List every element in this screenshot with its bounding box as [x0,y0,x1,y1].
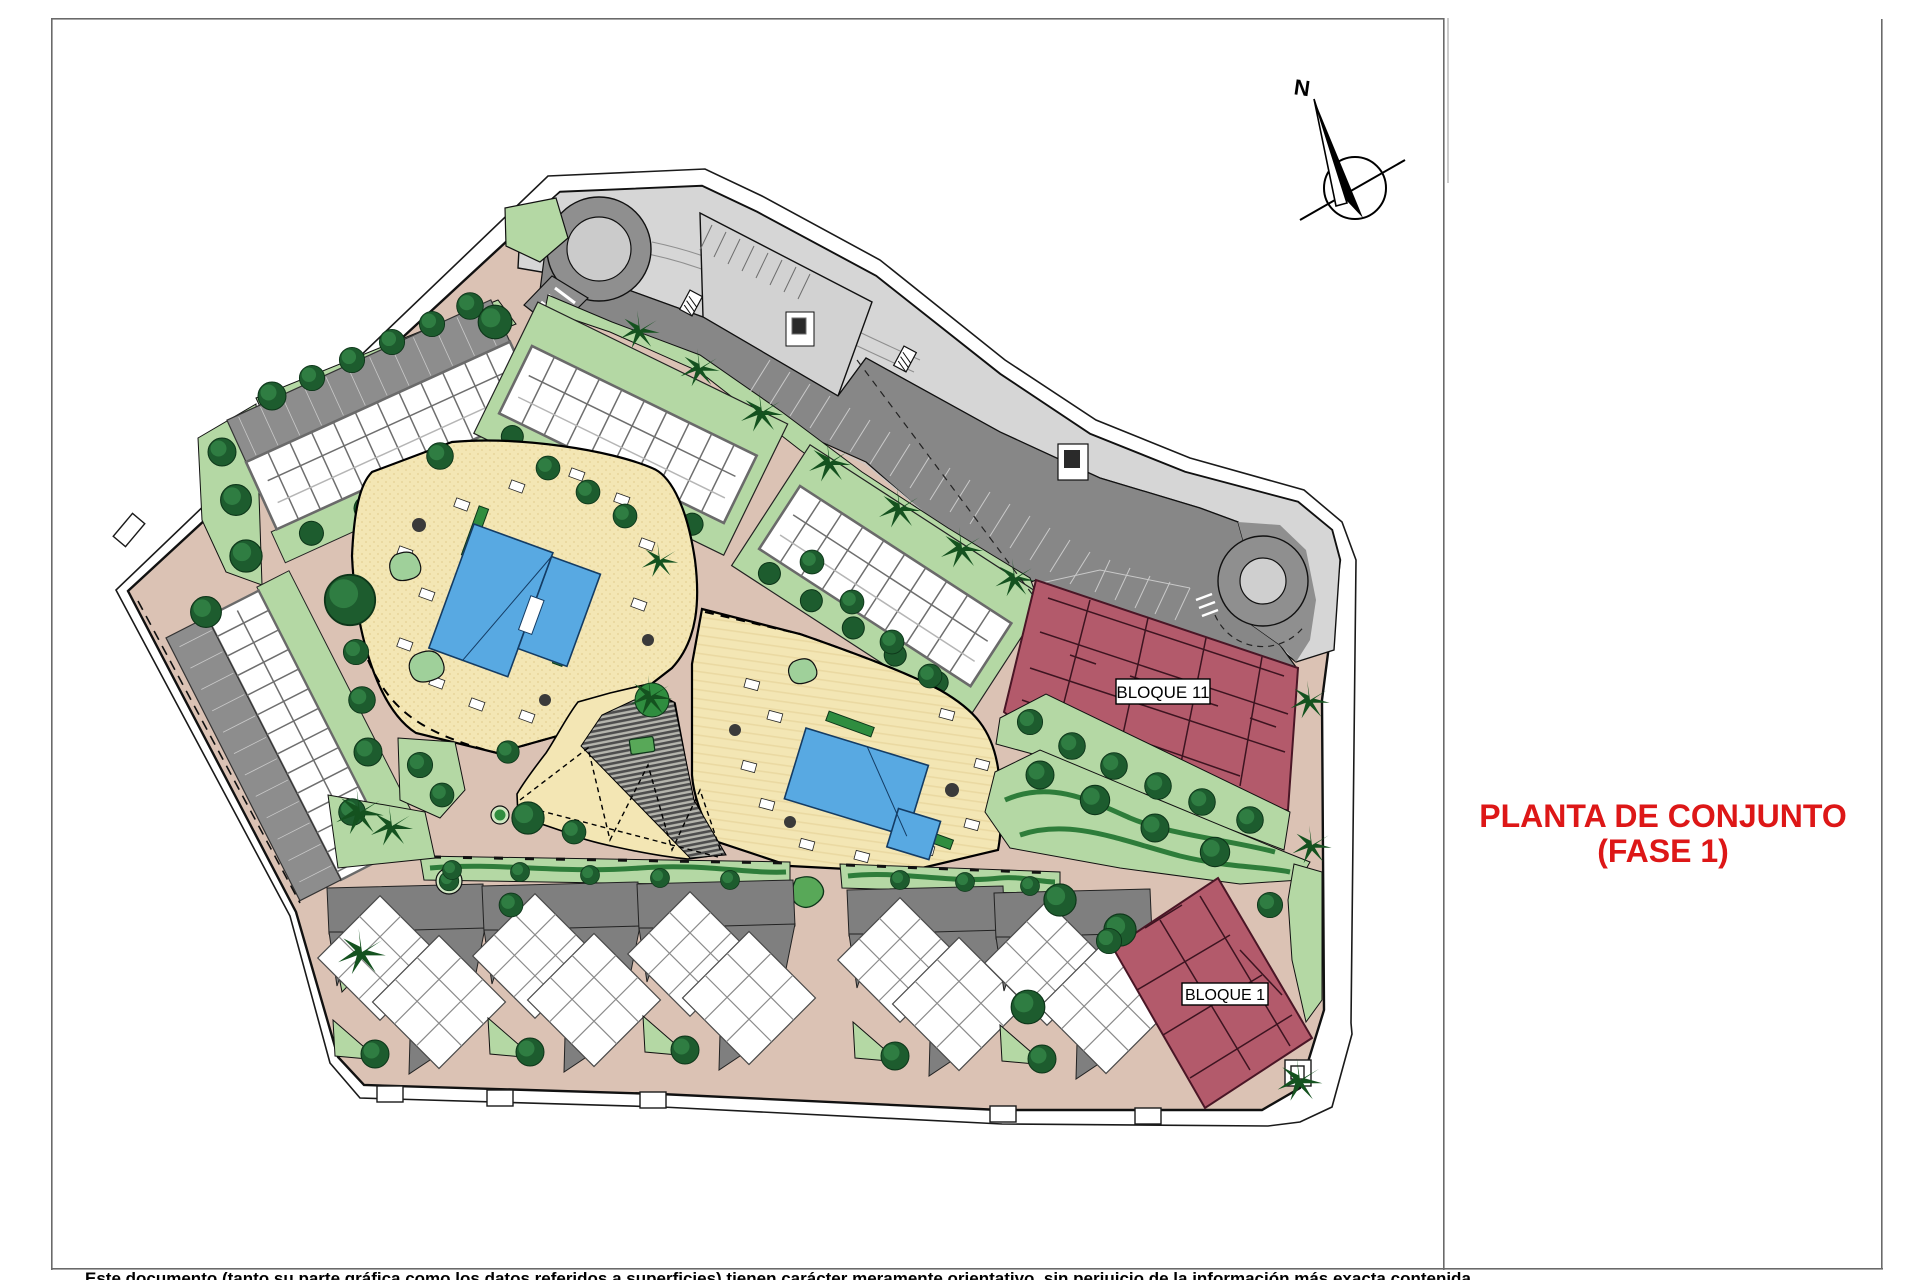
svg-text:BLOQUE 1: BLOQUE 1 [1185,987,1265,1004]
svg-text:Este documento (tanto su parte: Este documento (tanto su parte gráfica c… [85,1269,1471,1280]
svg-text:(FASE 1): (FASE 1) [1597,833,1729,869]
svg-text:BLOQUE 11: BLOQUE 11 [1116,683,1209,702]
svg-text:PLANTA DE CONJUNTO: PLANTA DE CONJUNTO [1479,798,1846,834]
